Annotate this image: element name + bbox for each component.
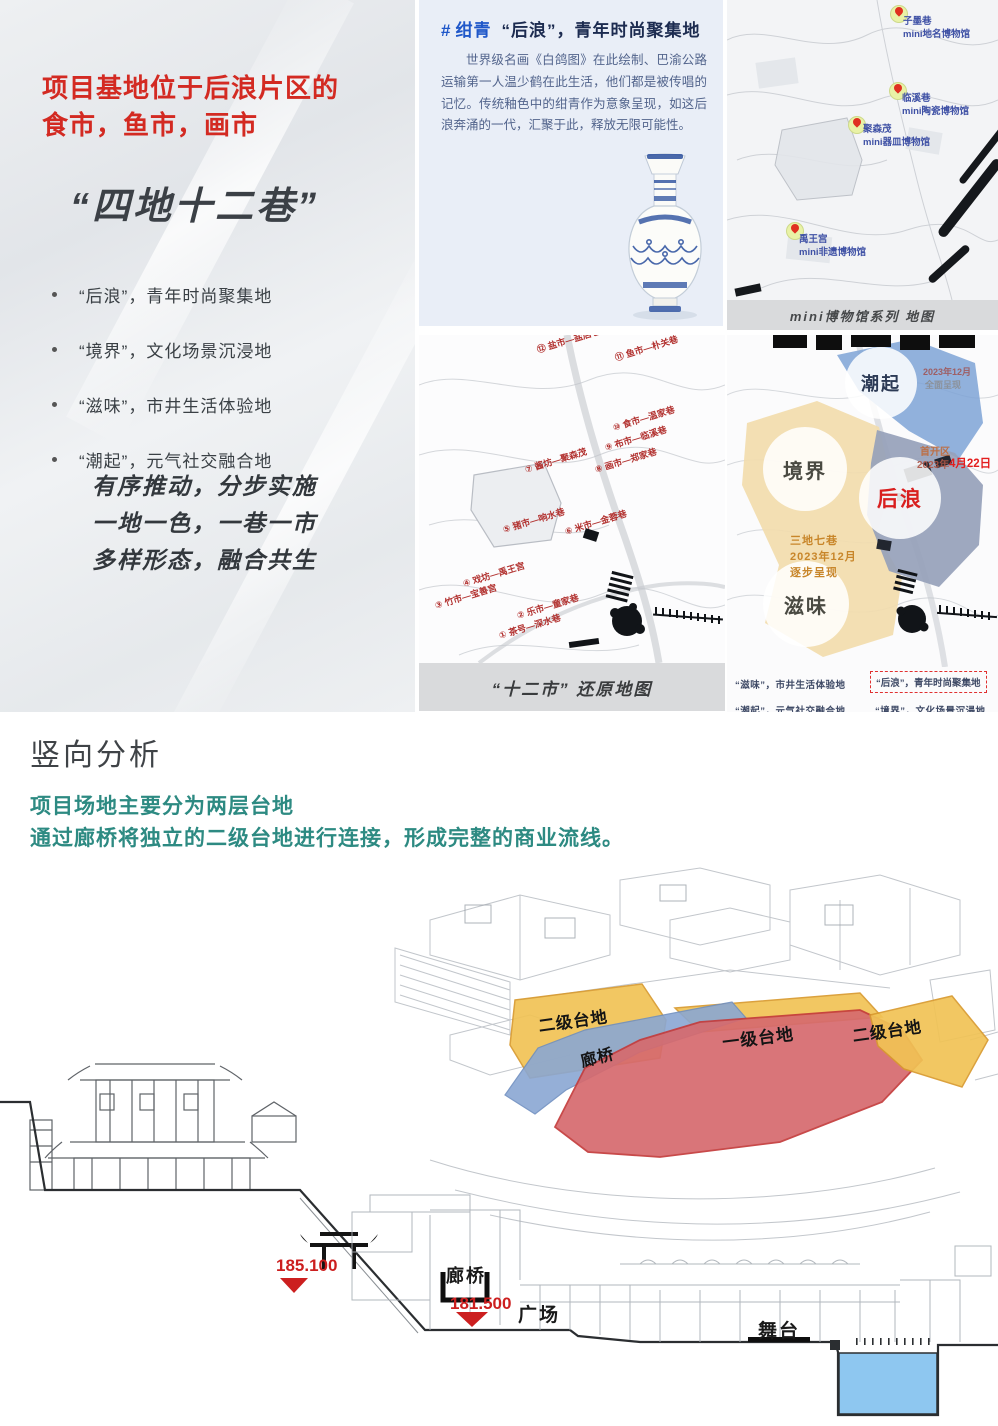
legend-jingjie: “境界”，文化场景沉浸地: [875, 703, 986, 712]
blue-white-vase-image: [617, 150, 713, 322]
vertical-analysis-title: 竖向分析: [30, 730, 162, 774]
va-desc-line1: 项目场地主要分为两层台地: [30, 790, 294, 820]
label-plaza: 广场: [518, 1300, 560, 1327]
project-title-line2: 食市，鱼市，画市: [42, 107, 339, 144]
museum-pin-label: 临溪巷 mini陶瓷博物馆: [902, 93, 969, 118]
sandi-note-line: 三地七巷: [790, 533, 857, 549]
museum-map-caption: mini博物馆系列 地图: [727, 300, 998, 330]
project-title: 项目基地位于后浪片区的 食市，鱼市，画市: [42, 70, 339, 144]
project-title-line1: 项目基地位于后浪片区的: [42, 70, 339, 107]
four-zones-map: 潮起 境界 后浪 滋味 2023年12月 全面呈现 首开区 2023年 4月22…: [727, 335, 998, 667]
list-item: “后浪”，青年时尚聚集地: [52, 282, 382, 307]
mini-museum-map: 子墨巷 mini地名博物馆 临溪巷 mini陶瓷博物馆 聚森茂 mini器皿博物…: [727, 0, 998, 300]
zones-legend: “滋味”，市井生活体验地 “后浪”，青年时尚聚集地 “潮起”，元气社交融合地 “…: [727, 667, 998, 712]
bullet-text: “境界”，文化场景沉浸地: [79, 337, 272, 362]
zone-label: 境界: [783, 455, 827, 484]
motto-line: 一地一色，一巷一市: [92, 505, 317, 542]
water-pool: [839, 1353, 937, 1414]
legend-houlang-boxed: “后浪”，青年时尚聚集地: [870, 671, 987, 693]
houlang-note-year: 2023年: [917, 456, 949, 471]
presentation-page: 项目基地位于后浪片区的 食市，鱼市，画市 “四地十二巷” “后浪”，青年时尚聚集…: [0, 0, 998, 1426]
sandi-note-line: 逐步呈现: [790, 565, 857, 581]
ganqing-heading-rest: “后浪”，青年时尚聚集地: [501, 21, 700, 40]
section-drawing: [0, 1050, 998, 1426]
motto-block: 有序推动，分步实施 一地一色，一巷一市 多样形态，融合共生: [92, 468, 317, 579]
twelve-map-basemap: [419, 335, 725, 663]
pin-place-name: 临溪巷: [902, 93, 969, 106]
ganqing-keyword: 绀青: [455, 21, 491, 40]
motto-line: 多样形态，融合共生: [92, 542, 317, 579]
bullet-text: “滋味”，市井生活体验地: [79, 392, 272, 417]
bullet-icon: [52, 347, 57, 352]
label-stage: 舞台: [758, 1316, 800, 1343]
zone-label: 后浪: [877, 483, 923, 513]
sandi-note-line: 2023年12月: [790, 549, 857, 565]
ganqing-paragraph: 世界级名画《白鸽图》在此绘制、巴渝公路运输第一人温少鹤在此生活，他们都是被传唱的…: [441, 50, 707, 137]
twelve-market-map: ⑫ 盐市—盐店巷 ⑪ 鱼市—朴关巷 ⑩ 食市—温家巷 ⑨ 布市—临溪巷 ⑧ 画市…: [419, 335, 725, 663]
museum-pin-label: 聚森茂 mini器皿博物馆: [863, 124, 930, 149]
pin-place-name: 禹王宫: [799, 234, 866, 247]
pin-place-name: 子墨巷: [903, 16, 970, 29]
chaoqi-note-text: 全面呈现: [925, 378, 961, 391]
zone-circle-chaoqi: 潮起: [845, 347, 917, 419]
pin-museum-name: mini地名博物馆: [903, 29, 970, 42]
list-item: “滋味”，市井生活体验地: [52, 392, 382, 417]
pin-museum-name: mini非遗博物馆: [799, 247, 866, 260]
bullet-icon: [52, 292, 57, 297]
museum-pin-label: 子墨巷 mini地名博物馆: [903, 16, 970, 41]
bullet-icon: [52, 457, 57, 462]
museum-pin-label: 禹王宫 mini非遗博物馆: [799, 234, 866, 259]
elevation-185: 185.100: [276, 1256, 337, 1276]
zone-label: 滋味: [784, 590, 828, 619]
pin-museum-name: mini陶瓷博物馆: [902, 106, 969, 119]
houlang-open-date: 4月22日: [949, 455, 991, 471]
bullet-icon: [52, 402, 57, 407]
ganqing-panel: #绀青“后浪”，青年时尚聚集地 世界级名画《白鸽图》在此绘制、巴渝公路运输第一人…: [419, 0, 723, 326]
zone-circle-jingjie: 境界: [763, 427, 847, 511]
pin-place-name: 聚森茂: [863, 124, 930, 137]
pin-museum-name: mini器皿博物馆: [863, 137, 930, 150]
elev-marker-upper: [280, 1278, 308, 1293]
legend-ziwei: “滋味”，市井生活体验地: [735, 677, 846, 691]
list-item: “境界”，文化场景沉浸地: [52, 337, 382, 362]
label-langqiao-section: 廊桥: [446, 1262, 486, 1288]
sandi-note: 三地七巷 2023年12月 逐步呈现: [790, 533, 857, 581]
chaoqi-note-date: 2023年12月: [923, 365, 971, 378]
va-desc-line2: 通过廊桥将独立的二级台地进行连接，形成完整的商业流线。: [30, 822, 624, 852]
legend-chaoqi: “潮起”，元气社交融合地: [735, 703, 846, 712]
hash-mark: #: [441, 21, 451, 40]
slogan-four-lands: “四地十二巷”: [70, 175, 319, 230]
twelve-market-caption: “十二市” 还原地图: [419, 663, 725, 711]
motto-line: 有序推动，分步实施: [92, 468, 317, 505]
bullet-text: “后浪”，青年时尚聚集地: [79, 282, 272, 307]
ganqing-heading: #绀青“后浪”，青年时尚聚集地: [441, 16, 700, 41]
elevation-181: 181.500: [450, 1294, 511, 1314]
elev-marker-lower: [456, 1312, 488, 1327]
zone-label: 潮起: [861, 370, 901, 396]
